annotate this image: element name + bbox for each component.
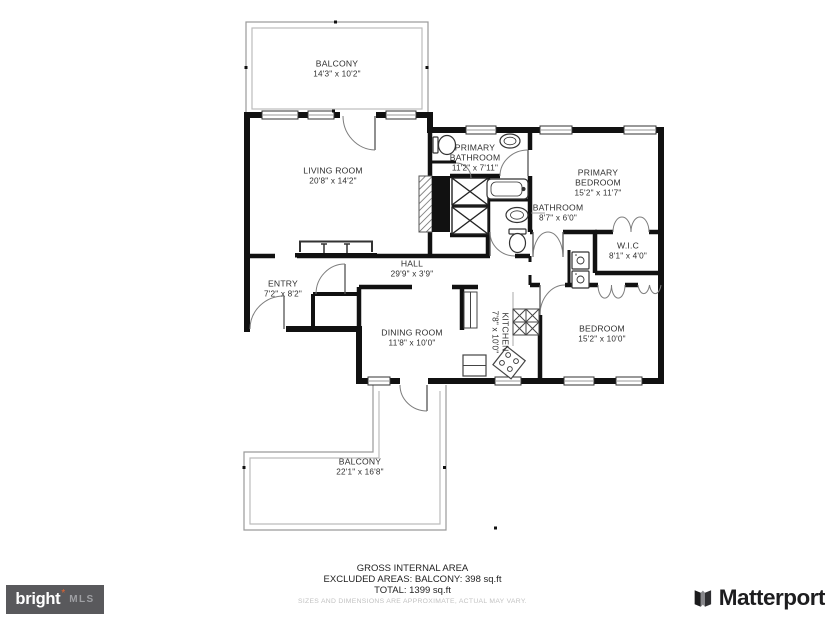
- room-label-kitchen: KITCHEN 7'8" x 10'0": [490, 311, 511, 354]
- room-label-dining-room: DINING ROOM 11'8" x 10'0": [381, 328, 442, 349]
- matterport-icon: [693, 586, 713, 611]
- bright-wordmark: bright: [15, 590, 60, 609]
- washer-icon: [572, 252, 589, 269]
- room-label-balcony-lower: BALCONY 22'1" x 16'8": [336, 457, 384, 478]
- toilet-icon: [509, 229, 526, 253]
- fireplace: [419, 176, 432, 232]
- floor-plan-drawing: [0, 0, 825, 619]
- sink-icon: [506, 208, 528, 223]
- bathtub-icon: [487, 179, 528, 199]
- room-label-hall: HALL 29'9" x 3'9": [391, 259, 434, 280]
- chimney: [432, 176, 450, 232]
- room-label-entry: ENTRY 7'2" x 8'2": [264, 279, 302, 300]
- refrigerator-icon: [463, 355, 486, 376]
- room-label-bedroom: BEDROOM 15'2" x 10'0": [578, 324, 626, 345]
- room-label-primary-bedroom: PRIMARY BEDROOM 15'2" x 11'7": [575, 168, 622, 199]
- room-label-primary-bathroom: PRIMARY BATHROOM 11'2" x 7'11": [450, 143, 501, 174]
- cooktop-icon: [513, 309, 539, 335]
- room-label-living-room: LIVING ROOM 20'8" x 14'2": [303, 166, 363, 187]
- room-label-balcony-upper: BALCONY 14'3" x 10'2": [313, 59, 361, 80]
- sink-icon: [500, 134, 520, 148]
- room-label-wic: W.I.C 8'1" x 4'0": [609, 241, 647, 262]
- mls-suffix: MLS: [69, 594, 94, 605]
- matterport-wordmark: Matterport: [719, 585, 825, 611]
- floor-plan-page: BALCONY 14'3" x 10'2" LIVING ROOM 20'8" …: [0, 0, 825, 619]
- dryer-icon: [572, 271, 589, 288]
- gross-internal-area-label: GROSS INTERNAL AREA: [0, 563, 825, 574]
- bright-star-icon: *: [61, 589, 65, 599]
- bright-mls-logo: bright*MLS: [6, 585, 104, 614]
- room-label-bathroom: BATHROOM 8'7" x 6'0": [533, 203, 584, 224]
- matterport-logo: Matterport: [693, 581, 825, 615]
- pantry-shelves-icon: [464, 292, 477, 328]
